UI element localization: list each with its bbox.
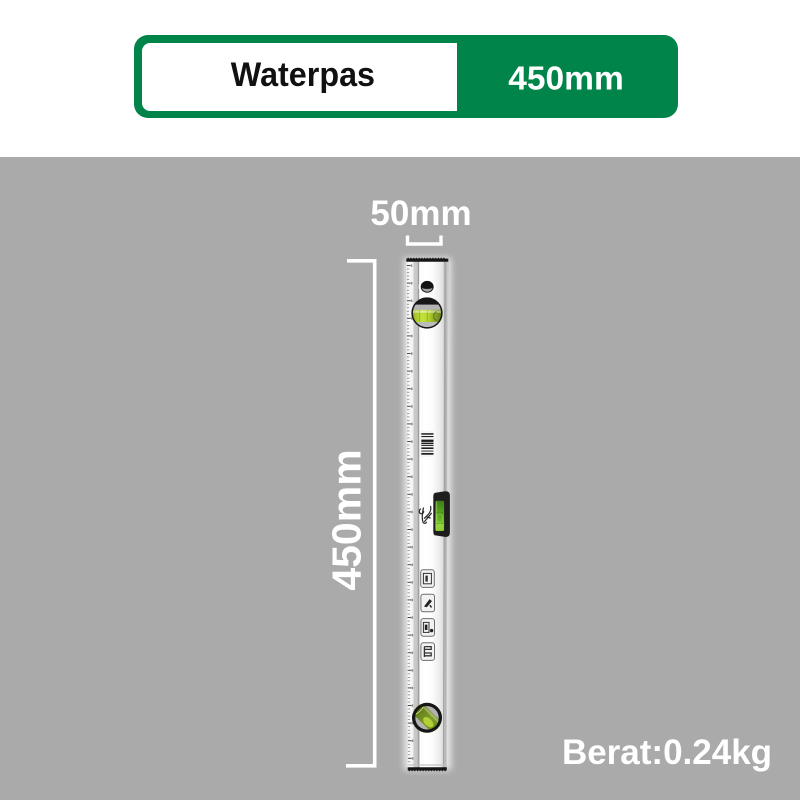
svg-text:450mm: 450mm bbox=[324, 449, 370, 590]
svg-text:50mm: 50mm bbox=[370, 194, 471, 233]
svg-text:Berat:0.24kg: Berat:0.24kg bbox=[562, 733, 772, 772]
